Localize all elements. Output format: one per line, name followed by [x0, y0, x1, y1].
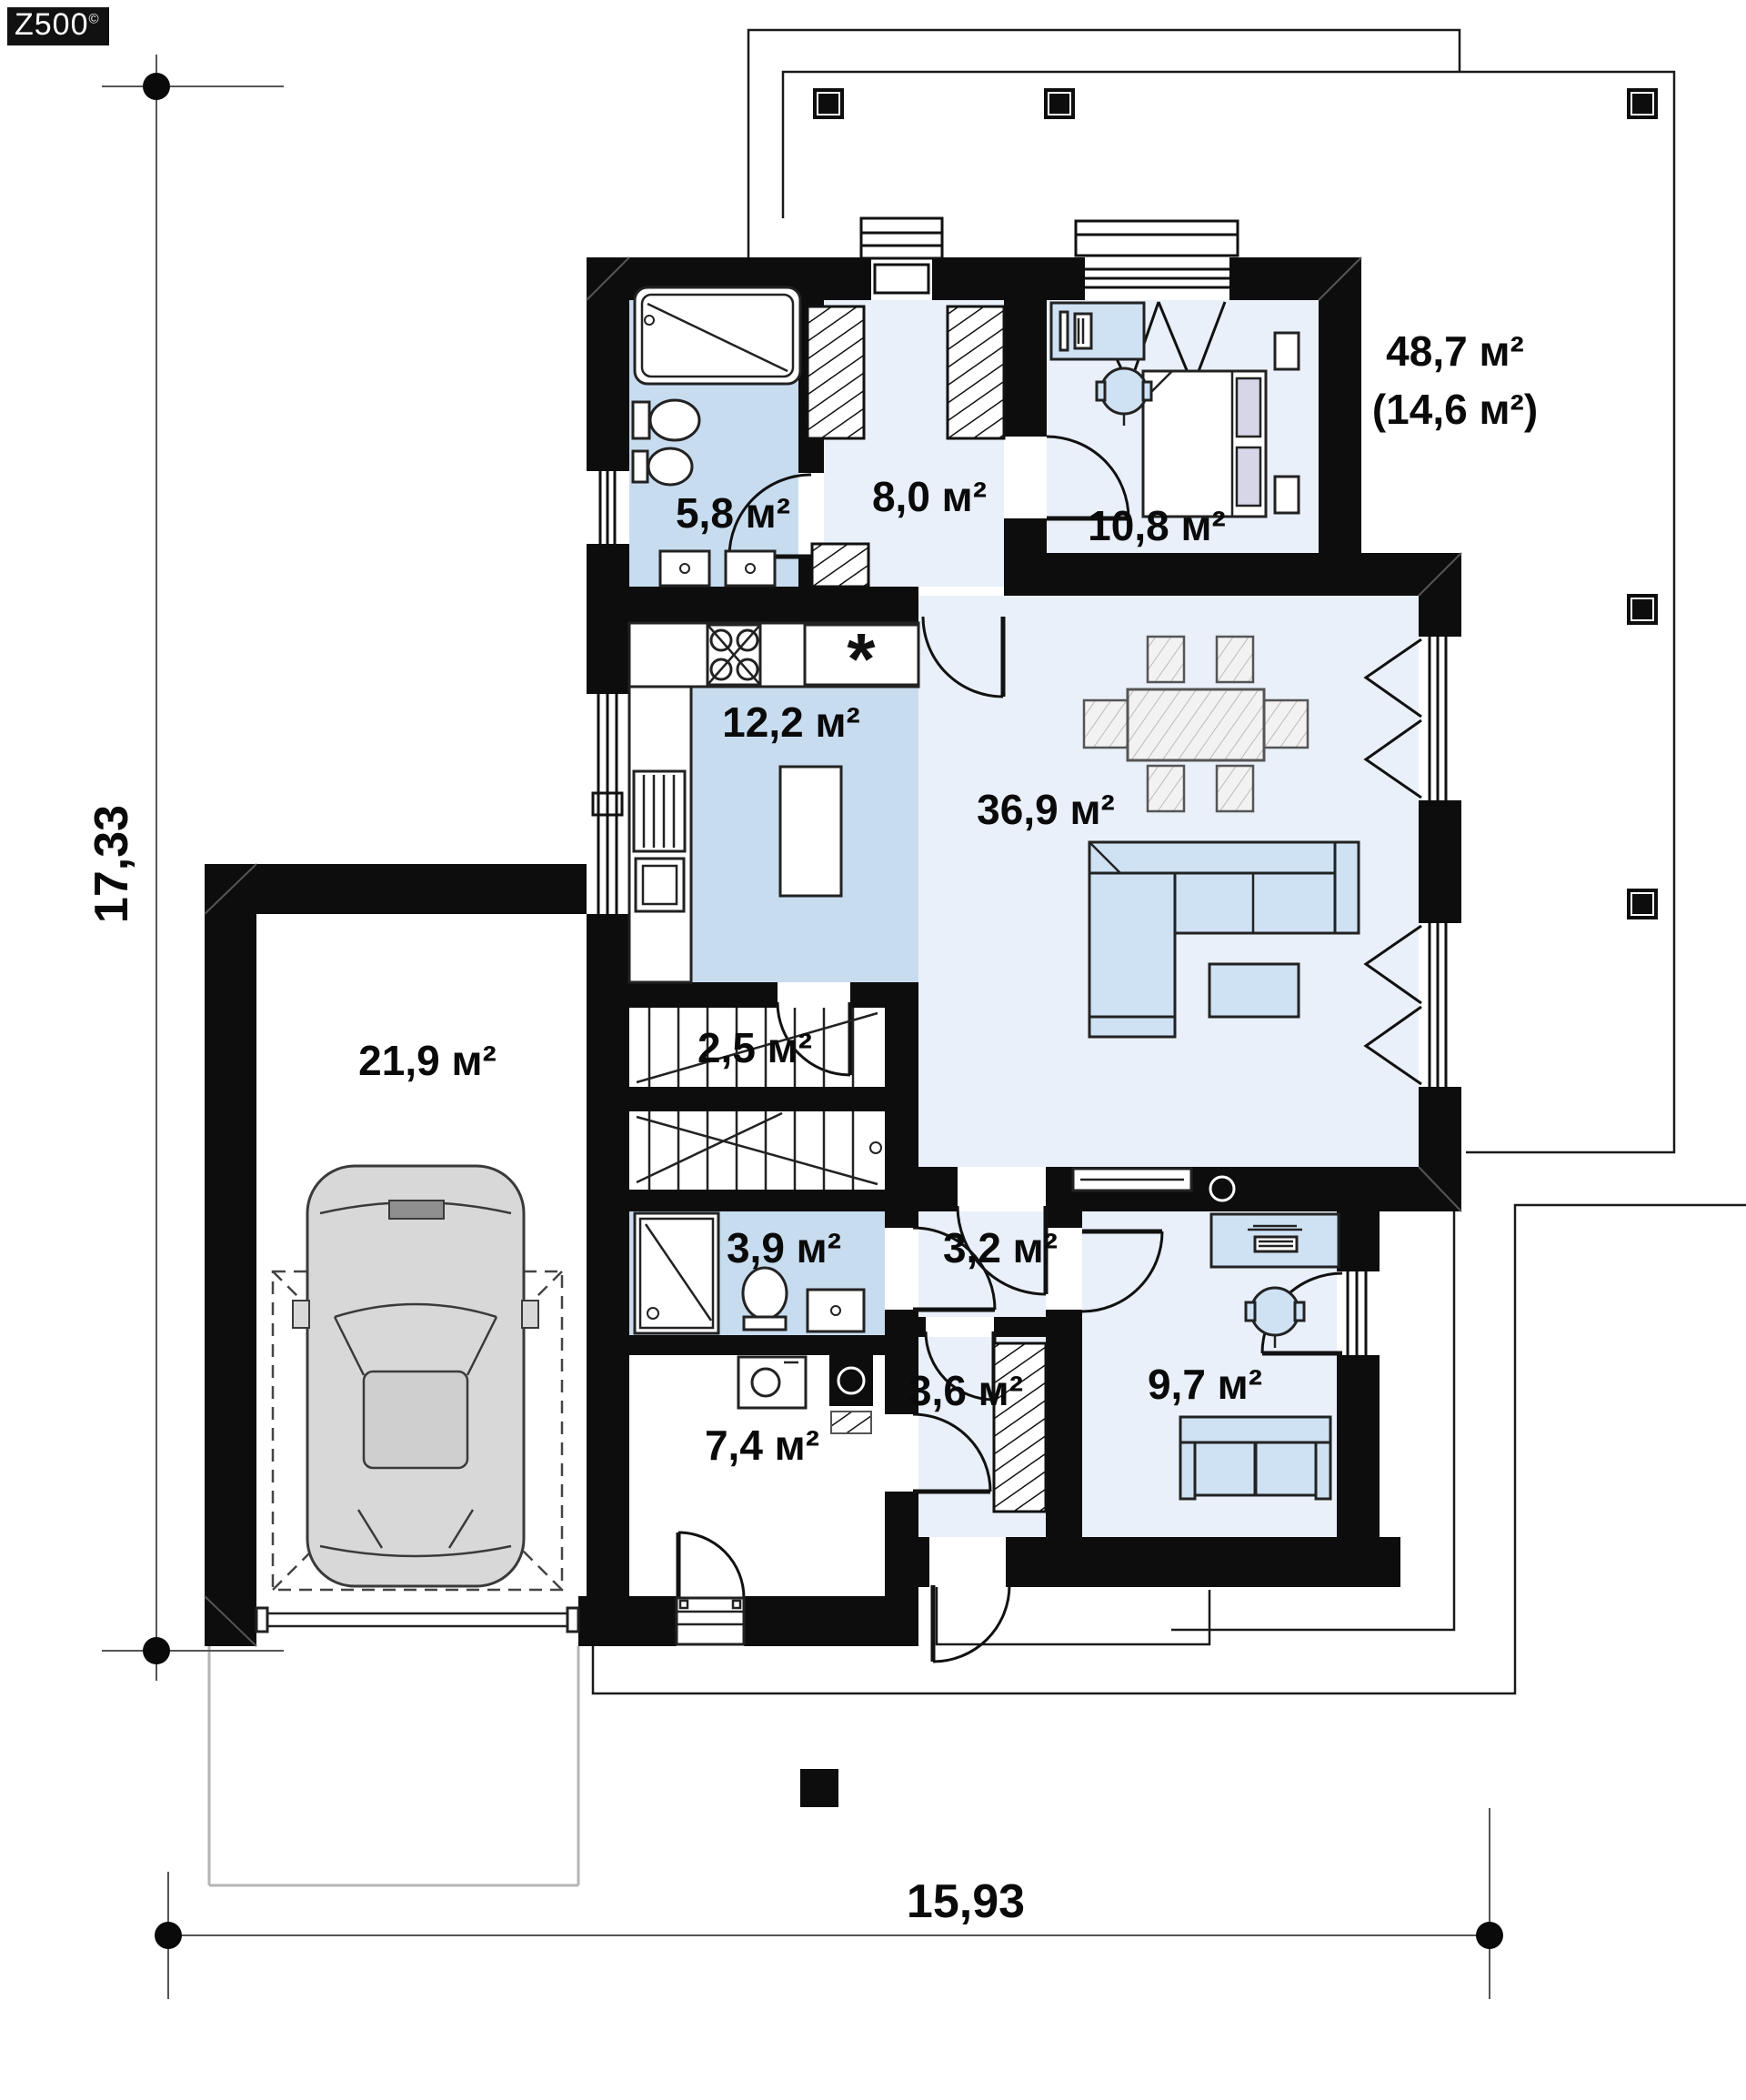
- wardrobe: [948, 306, 1004, 438]
- tv-cabinet: [1073, 1169, 1191, 1191]
- floor-plan-drawing: *: [0, 0, 1746, 2100]
- toilet: [633, 400, 699, 440]
- main-entrance-utility-door: [678, 1532, 744, 1598]
- dimension-left-label: 17,33: [85, 805, 138, 923]
- driveway: [209, 1646, 578, 1885]
- column: [1627, 889, 1658, 919]
- dimension-bottom: 15,93: [155, 1808, 1503, 1999]
- room-label-bathroom-bottom: 3,9 м²: [727, 1224, 841, 1271]
- dining-chair: [1148, 637, 1184, 682]
- boiler: [829, 1355, 873, 1433]
- garage-door: [256, 1608, 578, 1632]
- closet: [812, 544, 868, 587]
- shower: [635, 1213, 718, 1333]
- room-label-utility: 7,4 м²: [705, 1422, 819, 1469]
- room-label-bathroom-top: 5,8 м²: [676, 489, 790, 537]
- floor-plan-page: Z500©: [0, 0, 1746, 2100]
- terrace-area-label-line1: 48,7 м²: [1386, 327, 1524, 375]
- room-label-kitchen: 12,2 м²: [722, 698, 860, 746]
- column: [1627, 594, 1658, 625]
- room-label-bedroom: 10,8 м²: [1088, 502, 1226, 549]
- bed: [1143, 371, 1266, 517]
- coffee-table: [1209, 964, 1299, 1017]
- column: [813, 88, 844, 119]
- fridge: [634, 771, 685, 851]
- kitchen-island: [780, 767, 841, 896]
- kitchen-window: [587, 694, 629, 914]
- office-sofa: [1180, 1417, 1330, 1499]
- car-mirror: [293, 1301, 309, 1328]
- dining-table: [1128, 689, 1264, 760]
- stove: [707, 625, 760, 685]
- toilet: [743, 1268, 787, 1330]
- dining-chair: [1084, 700, 1128, 748]
- terrace-area-label-line2: (14,6 м²): [1372, 386, 1538, 433]
- column: [1627, 88, 1658, 119]
- dining-chair: [1217, 766, 1253, 811]
- room-label-entry: 3,6 м²: [908, 1367, 1023, 1414]
- bedroom-desk: [1051, 303, 1144, 359]
- room-label-hallway: 8,0 м²: [872, 473, 987, 520]
- office-terrace-door: [1337, 1271, 1380, 1355]
- fireplace: [1198, 1169, 1248, 1210]
- room-label-hall: 3,2 м²: [943, 1224, 1058, 1271]
- bathtub: [635, 287, 800, 384]
- bathroom-window: [587, 471, 629, 544]
- car-mirror: [522, 1301, 538, 1328]
- garage-group: [209, 1166, 578, 1885]
- dining-chair: [1264, 700, 1308, 748]
- column: [800, 1769, 838, 1807]
- north-entrance-door: [861, 218, 942, 300]
- room-label-stairs: 2,5 м²: [697, 1024, 812, 1071]
- oven: [636, 859, 684, 911]
- sink-asterisk-icon: *: [847, 618, 876, 699]
- bidet: [633, 448, 692, 485]
- column: [1044, 88, 1075, 119]
- sink: [808, 1290, 864, 1331]
- entry-porch-door: [933, 1585, 1009, 1662]
- entrance-steps: [677, 1598, 744, 1644]
- washing-machine: [738, 1357, 806, 1408]
- dining-chair: [1217, 637, 1253, 682]
- dimension-bottom-label: 15,93: [907, 1875, 1025, 1928]
- wardrobe: [808, 306, 864, 438]
- dining-chair: [1148, 766, 1184, 811]
- room-label-office: 9,7 м²: [1148, 1361, 1262, 1408]
- office-desk: [1211, 1214, 1339, 1267]
- room-label-garage: 21,9 м²: [358, 1037, 497, 1084]
- nightstand: [1275, 333, 1299, 369]
- nightstand: [1275, 477, 1299, 513]
- room-label-living: 36,9 м²: [977, 786, 1115, 833]
- car: [293, 1166, 538, 1586]
